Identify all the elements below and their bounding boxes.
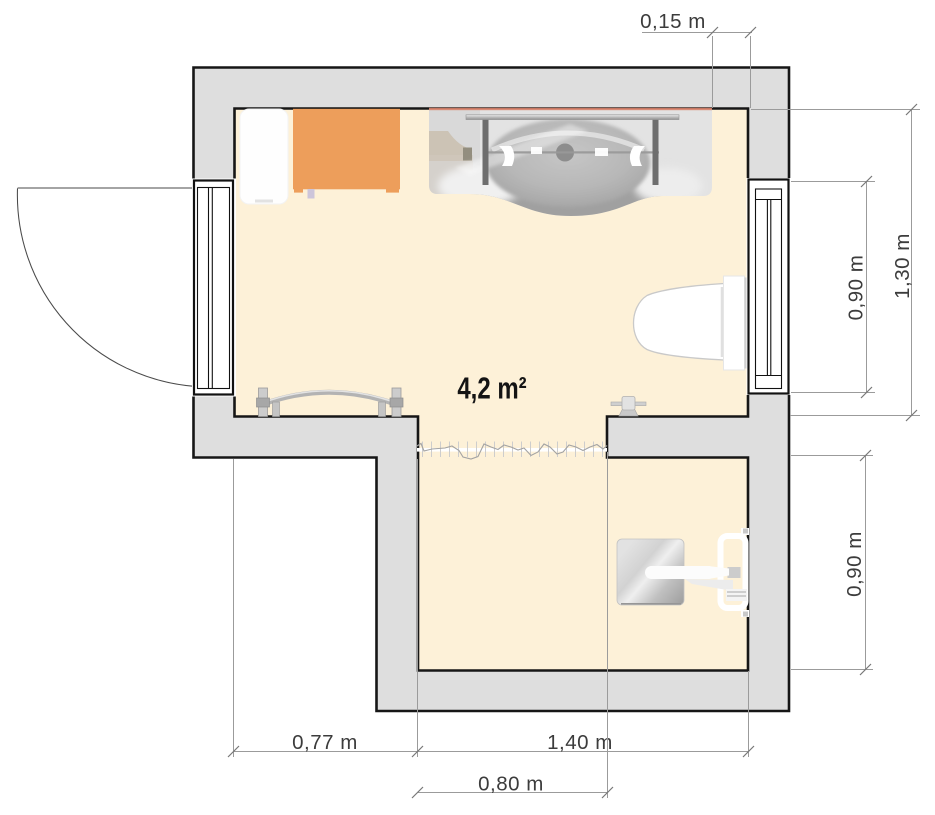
svg-text:0,80 m: 0,80 m [478,773,544,796]
svg-text:1,30 m: 1,30 m [891,233,914,299]
svg-text:0,90 m: 0,90 m [845,255,868,321]
svg-text:1,40 m: 1,40 m [547,731,613,754]
svg-text:0,77 m: 0,77 m [292,731,358,754]
svg-text:0,15 m: 0,15 m [640,10,706,33]
svg-text:0,90 m: 0,90 m [843,531,866,597]
svg-text:4,2 m²: 4,2 m² [457,371,526,406]
